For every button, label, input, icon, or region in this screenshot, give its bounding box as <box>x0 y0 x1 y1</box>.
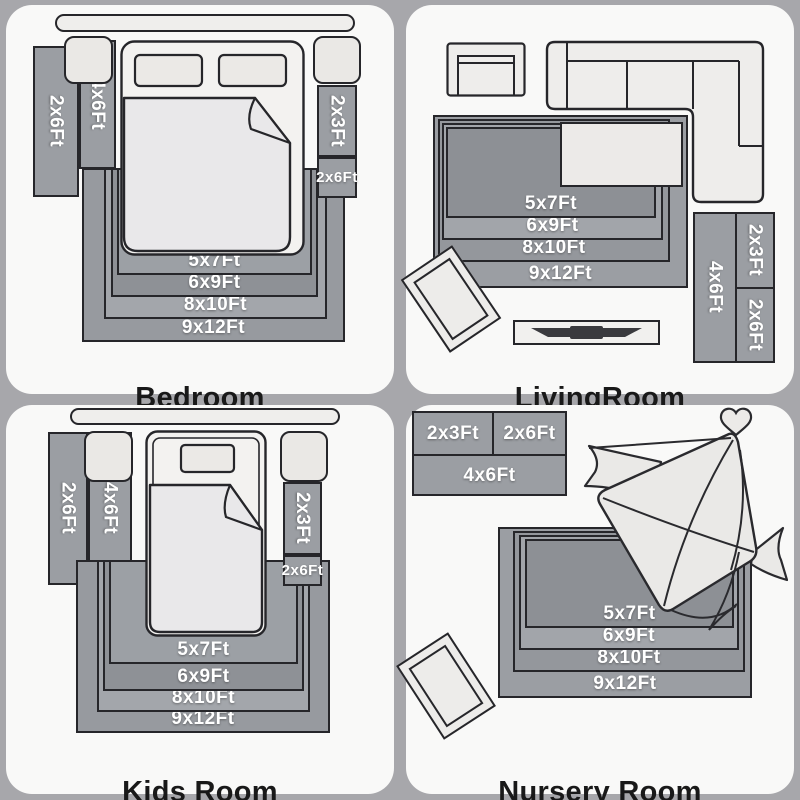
rug-size-label: 6x9Ft <box>177 667 229 686</box>
rug-size-label: 2x6Ft <box>746 299 765 351</box>
coffee-table <box>560 122 683 187</box>
rug-size-label: 2x6Ft <box>282 563 324 578</box>
rug-size-guide-infographic: 2x6Ft 4x6Ft 9x12Ft 8x10Ft 6x9Ft 5x7Ft 2x… <box>0 0 800 800</box>
rug-size-label: 2x3Ft <box>427 424 479 443</box>
rug-size-label: 4x6Ft <box>101 482 120 534</box>
rug-size-label: 4x6Ft <box>706 261 725 313</box>
rug-size-label: 9x12Ft <box>593 674 656 693</box>
single-bed-icon <box>145 430 267 637</box>
nightstand-right <box>313 36 361 84</box>
rug-size-label: 5x7Ft <box>525 194 577 213</box>
rug-size-label: 2x3Ft <box>746 224 765 276</box>
rug-size-label: 9x12Ft <box>529 264 592 283</box>
rug-size-label: 8x10Ft <box>184 295 247 314</box>
panel-nursery: 2x3Ft 2x6Ft 4x6Ft 9x12Ft 8x10Ft 6x9Ft 5x… <box>400 400 800 800</box>
rug-size-label: 4x6Ft <box>88 78 107 130</box>
play-tent-canopy-icon <box>573 402 788 637</box>
double-bed-icon <box>120 40 305 256</box>
rug-size-label: 2x3Ft <box>328 95 347 147</box>
rug-size-label: 2x3Ft <box>293 492 312 544</box>
rug-2x3-group: 2x3Ft <box>412 411 494 456</box>
armchair-icon <box>446 42 526 97</box>
headboard <box>70 408 340 425</box>
rug-size-label: 8x10Ft <box>597 648 660 667</box>
rug-2x6-group: 2x6Ft <box>492 411 567 456</box>
panel-livingroom: 9x12Ft 8x10Ft 6x9Ft 5x7Ft 4x6Ft 2x3Ft 2x… <box>400 0 800 400</box>
rug-size-label: 2x6Ft <box>47 95 66 147</box>
rug-2x3-right: 2x3Ft <box>283 482 322 555</box>
nightstand-left <box>84 431 133 482</box>
rug-2x3-side: 2x3Ft <box>735 212 775 289</box>
headboard <box>55 14 355 32</box>
nightstand-left <box>64 36 113 84</box>
rug-2x6-side: 2x6Ft <box>735 287 775 363</box>
rug-2x3-right: 2x3Ft <box>317 85 357 157</box>
room-title-kidsroom: Kids Room <box>0 776 400 800</box>
rug-size-label: 8x10Ft <box>522 238 585 257</box>
rug-size-label: 2x6Ft <box>59 482 78 534</box>
rug-size-label: 2x6Ft <box>316 170 358 185</box>
rug-size-label: 2x6Ft <box>503 424 555 443</box>
tv-icon <box>515 322 658 343</box>
nightstand-right <box>280 431 328 482</box>
rug-size-label: 5x7Ft <box>177 640 229 659</box>
rug-size-label: 6x9Ft <box>188 273 240 292</box>
panel-kidsroom: 2x6Ft 4x6Ft 9x12Ft 8x10Ft 6x9Ft 5x7Ft 2x… <box>0 400 400 800</box>
tv-console <box>513 320 660 345</box>
room-title-nursery: Nursery Room <box>400 776 800 800</box>
rug-size-label: 4x6Ft <box>463 466 515 485</box>
panel-bedroom: 2x6Ft 4x6Ft 9x12Ft 8x10Ft 6x9Ft 5x7Ft 2x… <box>0 0 400 400</box>
rug-size-label: 6x9Ft <box>526 216 578 235</box>
rug-2x6-right: 2x6Ft <box>317 157 357 198</box>
rug-size-label: 9x12Ft <box>182 318 245 337</box>
rug-4x6-side: 4x6Ft <box>693 212 737 363</box>
rug-4x6-group: 4x6Ft <box>412 454 567 496</box>
rug-2x6-right: 2x6Ft <box>283 555 322 586</box>
